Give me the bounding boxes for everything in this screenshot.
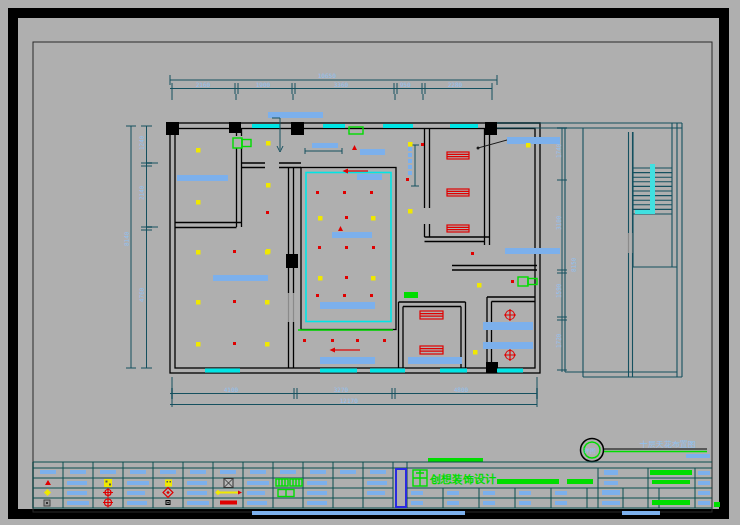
- cad-drawing: 10650 2160 1900 3360 950 2280 8140 1240 …: [0, 0, 740, 525]
- dim-text: 1720: [555, 333, 562, 348]
- crossed-box-icon: [224, 479, 233, 488]
- dim-text: 1740: [555, 143, 562, 158]
- red-bar-lamp-icon: [220, 501, 237, 505]
- yellow-downlight-icon: [165, 480, 172, 487]
- dim-text: 3360: [334, 81, 349, 88]
- dim-text: 4800: [454, 386, 469, 393]
- company-underline-bar2: [567, 479, 593, 484]
- stair-handrail: [650, 164, 655, 214]
- yellow-panel-lamp-icon: [104, 479, 112, 487]
- dim-text: 1900: [256, 81, 271, 88]
- dim-text: 1240: [138, 135, 145, 150]
- cad-drawing-page: 10650 2160 1900 3360 950 2280 8140 1240 …: [0, 0, 740, 525]
- dim-text: 10650: [318, 72, 336, 79]
- dim-text: 12170: [340, 397, 358, 404]
- dim-text: 2140: [138, 185, 145, 200]
- dim-text: 3270: [334, 386, 349, 393]
- dim-text: 4760: [138, 287, 145, 302]
- dim-text: 4100: [224, 386, 239, 393]
- green-revision-bar: [428, 458, 483, 462]
- plan-title: 十层天花布置图: [639, 440, 696, 449]
- company-underline-bar: [497, 479, 559, 484]
- dim-text: 8150: [570, 257, 577, 272]
- dim-text: 3100: [555, 215, 562, 230]
- dim-text: 8140: [123, 231, 130, 246]
- green-chip: [714, 502, 720, 507]
- gray-switch-icon: [44, 500, 50, 506]
- dim-text: 950: [400, 81, 411, 88]
- dim-text: 1590: [555, 283, 562, 298]
- dim-text: 2160: [196, 81, 211, 88]
- detail-label: 详图: [584, 447, 596, 455]
- dim-text: 2280: [448, 81, 463, 88]
- company-name: 创想装饰设计: [429, 473, 497, 486]
